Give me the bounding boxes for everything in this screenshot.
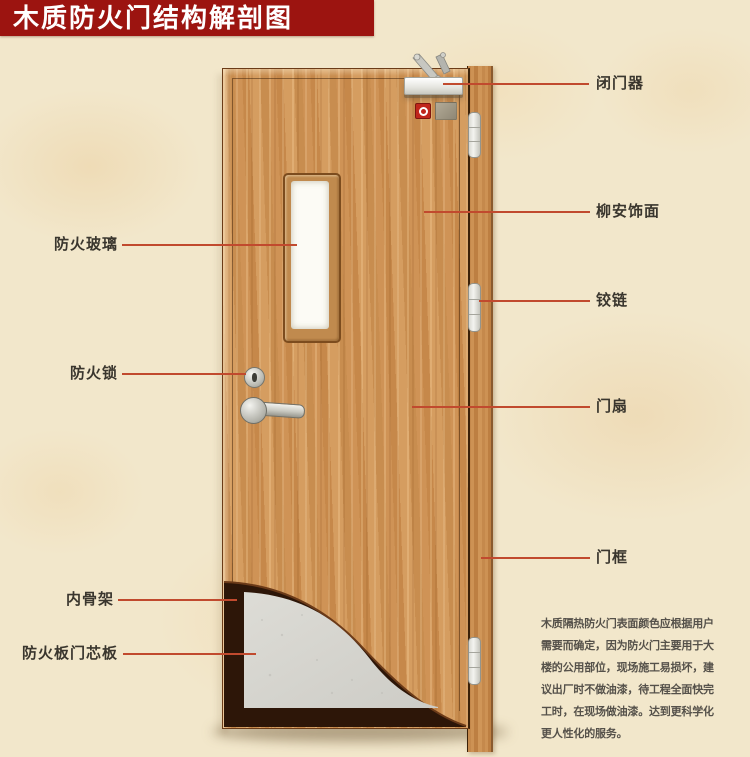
label-fire-glass: 防火玻璃 bbox=[8, 236, 118, 254]
hinge-top bbox=[468, 112, 481, 158]
label-inner-skeleton: 内骨架 bbox=[4, 591, 114, 609]
label-door-closer: 闭门器 bbox=[596, 75, 644, 93]
hinge-bottom bbox=[468, 637, 481, 685]
hinge-middle bbox=[468, 283, 481, 332]
door-closer-body bbox=[404, 77, 463, 95]
hinge-knuckle-line bbox=[469, 667, 480, 668]
door-handle-rose bbox=[240, 397, 267, 424]
leader-line-core-board bbox=[123, 653, 256, 655]
leader-line-door-leaf bbox=[412, 406, 590, 408]
page-title: 木质防火门结构解剖图 bbox=[0, 0, 374, 36]
leader-line-fire-glass bbox=[122, 244, 297, 246]
label-hinge: 铰链 bbox=[596, 292, 628, 310]
metal-plate bbox=[435, 102, 457, 120]
fire-glass-window-frame bbox=[283, 173, 341, 343]
leader-line-inner-skeleton bbox=[118, 599, 237, 601]
leader-line-hinge bbox=[479, 300, 590, 302]
title-banner: 木质防火门结构解剖图 bbox=[0, 0, 374, 36]
label-door-leaf: 门扇 bbox=[596, 398, 628, 416]
cutaway-section bbox=[222, 575, 467, 727]
label-veneer: 柳安饰面 bbox=[596, 203, 660, 221]
keyhole bbox=[252, 373, 257, 382]
fire-lock-cylinder bbox=[244, 367, 265, 388]
label-fire-lock: 防火锁 bbox=[8, 365, 118, 383]
fire-glass-pane bbox=[291, 181, 329, 329]
leader-line-door-closer bbox=[443, 83, 589, 85]
fire-core-board bbox=[244, 592, 438, 708]
description-paragraph: 木质隔热防火门表面颜色应根据用户 需要而确定，因为防火门主要用于大 楼的公用部位… bbox=[541, 613, 731, 745]
leader-line-door-frame bbox=[481, 557, 590, 559]
hinge-knuckle-line bbox=[469, 652, 480, 653]
label-core-board: 防火板门芯板 bbox=[8, 645, 118, 663]
leader-line-veneer bbox=[424, 211, 590, 213]
label-door-frame: 门框 bbox=[596, 549, 628, 567]
alarm-indicator-ring bbox=[419, 107, 428, 116]
hinge-knuckle-line bbox=[469, 314, 480, 315]
leader-line-fire-lock bbox=[122, 373, 246, 375]
alarm-indicator bbox=[415, 103, 431, 119]
hinge-knuckle-line bbox=[469, 127, 480, 128]
hinge-knuckle-line bbox=[469, 141, 480, 142]
poster-canvas: 木质防火门结构解剖图 bbox=[0, 0, 750, 757]
